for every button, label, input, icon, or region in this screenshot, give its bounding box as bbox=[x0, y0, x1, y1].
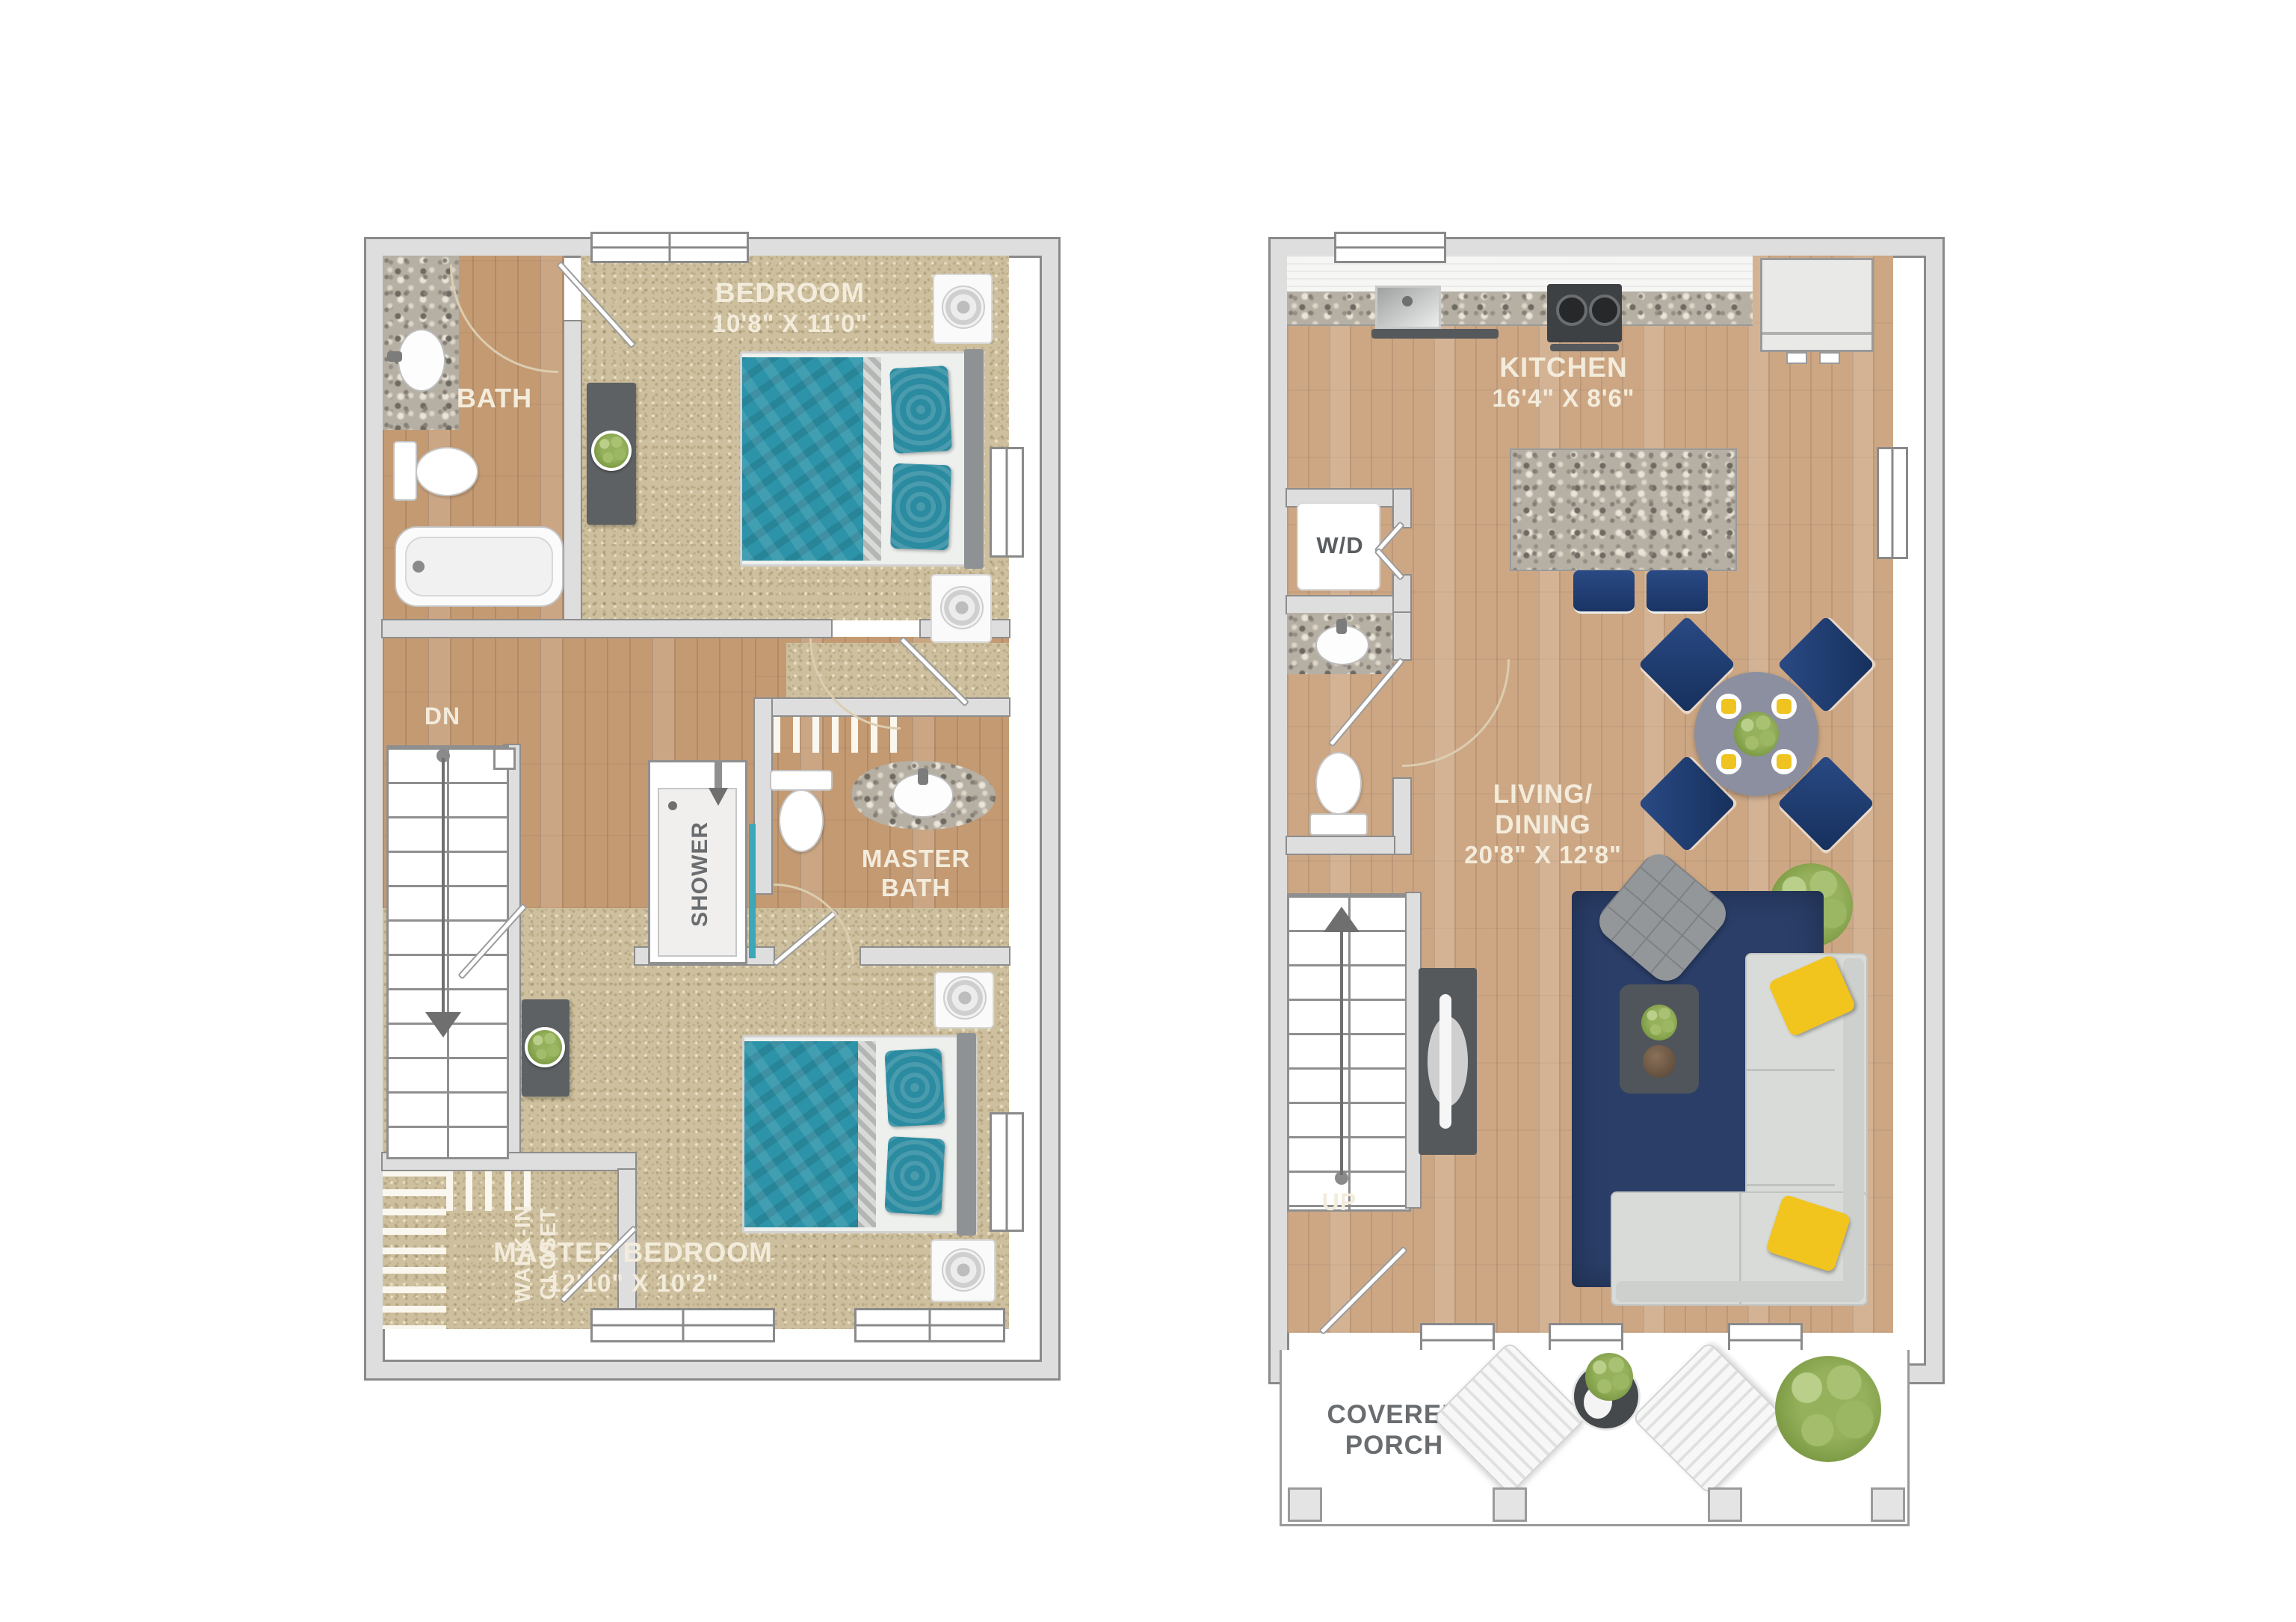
master-plant bbox=[528, 1030, 562, 1064]
laundry-wall-stub bbox=[1394, 490, 1410, 527]
plate-food bbox=[1777, 699, 1792, 714]
fridge-divider bbox=[1762, 332, 1871, 335]
sofa-backrest bbox=[1616, 1281, 1863, 1302]
porch-post bbox=[1871, 1487, 1905, 1522]
burner-icon bbox=[1556, 295, 1587, 326]
bed-headboard bbox=[964, 349, 984, 569]
master-vanity-faucet bbox=[918, 768, 928, 785]
porch-table-plant bbox=[1585, 1353, 1633, 1401]
master-bath-side-wall bbox=[755, 699, 771, 893]
bath-toilet-tank bbox=[393, 441, 417, 501]
bed-blanket-stripe bbox=[863, 357, 881, 561]
window bbox=[590, 232, 749, 263]
stairs-up bbox=[1287, 893, 1411, 1212]
bath-label: BATH bbox=[422, 383, 567, 414]
living-dimensions: 20'8" X 12'8" bbox=[1455, 841, 1631, 870]
stairs-down bbox=[386, 745, 509, 1159]
kitchen-faucet bbox=[1402, 296, 1413, 306]
bar-stool bbox=[1647, 570, 1708, 614]
window bbox=[854, 1308, 1005, 1342]
porch-post bbox=[1708, 1487, 1742, 1522]
porch-tree bbox=[1775, 1356, 1881, 1462]
hall-wall-a bbox=[383, 620, 831, 637]
up-arrow-icon bbox=[1324, 907, 1360, 932]
master-toilet-tank bbox=[770, 770, 833, 791]
living-label-line1: LIVING/ bbox=[1455, 779, 1631, 810]
master-bath-bottom-wall-b bbox=[861, 948, 1009, 964]
bed-pillow bbox=[890, 463, 951, 551]
porch-post bbox=[1493, 1487, 1527, 1522]
bed-comforter bbox=[742, 357, 863, 561]
porch-chair bbox=[1632, 1341, 1786, 1495]
bar-stool bbox=[1573, 570, 1635, 614]
master-bed bbox=[742, 1035, 977, 1233]
powder-bottom-wall bbox=[1287, 837, 1394, 854]
bed-headboard bbox=[957, 1033, 976, 1236]
kitchen-dimensions: 16'4" X 8'6" bbox=[1478, 384, 1650, 413]
burner-icon bbox=[1589, 295, 1620, 326]
decor-basket bbox=[1643, 1045, 1676, 1078]
walk-in-closet-label: WALK-IN CLOSET bbox=[487, 1186, 584, 1321]
stair-arrow-stem bbox=[1340, 932, 1343, 1175]
powder-toilet-tank bbox=[1309, 813, 1368, 836]
plate-food bbox=[1777, 754, 1792, 769]
dishwasher-handle bbox=[1371, 329, 1499, 339]
window bbox=[590, 1308, 775, 1342]
bath-faucet bbox=[387, 351, 402, 362]
lamp-icon bbox=[942, 286, 985, 329]
newel-post bbox=[493, 747, 516, 770]
bedroom-name: BEDROOM bbox=[715, 277, 865, 308]
window bbox=[1877, 447, 1908, 559]
living-dining-label: LIVING/ DINING 20'8" X 12'8" bbox=[1455, 779, 1631, 870]
bath-toilet-bowl bbox=[416, 447, 478, 496]
bed-pillow bbox=[884, 1136, 945, 1215]
bed-blanket-stripe bbox=[858, 1041, 876, 1227]
main-floor-plan: KITCHEN 16'4" X 8'6" W/D bbox=[1271, 239, 1942, 1382]
down-arrow-icon bbox=[425, 1012, 461, 1037]
plate-food bbox=[1721, 754, 1736, 769]
kitchen-counter bbox=[1287, 292, 1753, 326]
stair-arrow-stem bbox=[442, 758, 445, 1012]
bed-comforter bbox=[744, 1041, 858, 1227]
shower-head-pipe bbox=[715, 762, 722, 788]
kitchen-sink bbox=[1375, 286, 1441, 329]
table-centerpiece-plant bbox=[1734, 712, 1779, 756]
bedroom-plant bbox=[594, 434, 629, 468]
lamp-icon bbox=[943, 976, 987, 1020]
washer-dryer-label: W/D bbox=[1298, 532, 1382, 560]
window bbox=[990, 447, 1024, 558]
powder-wall-stub bbox=[1394, 779, 1410, 854]
bed-pillow bbox=[889, 366, 952, 454]
bedroom-dimensions: 10'8" X 11'0" bbox=[667, 309, 913, 339]
lamp-icon bbox=[942, 1248, 985, 1292]
powder-toilet-bowl bbox=[1315, 752, 1362, 815]
window bbox=[1334, 232, 1446, 263]
stairs-down-label: DN bbox=[401, 703, 484, 731]
bathtub bbox=[395, 526, 564, 607]
bedroom-bed bbox=[740, 351, 984, 567]
bedroom-label: BEDROOM 10'8" X 11'0" bbox=[667, 277, 913, 339]
kitchen-name: KITCHEN bbox=[1499, 352, 1627, 383]
bed-pillow bbox=[884, 1048, 945, 1127]
stairs-up-label: UP bbox=[1298, 1188, 1380, 1217]
covered-porch: COVERED PORCH bbox=[1280, 1350, 1910, 1526]
fridge-tab bbox=[1786, 352, 1807, 364]
coffee-table-plant bbox=[1641, 1005, 1677, 1040]
tv-screen bbox=[1439, 994, 1451, 1129]
refrigerator bbox=[1760, 258, 1874, 352]
porch-chair bbox=[1433, 1341, 1587, 1495]
master-bath-label: MASTER BATH bbox=[836, 845, 996, 903]
floor-plan-canvas: DN SHOWER MASTER BATH BATH bbox=[0, 0, 2296, 1622]
kitchen-island bbox=[1510, 448, 1737, 571]
sofa-seam bbox=[1745, 1184, 1835, 1186]
bathtub-faucet bbox=[413, 561, 425, 573]
kitchen-label: KITCHEN 16'4" X 8'6" bbox=[1478, 351, 1650, 413]
plate-food bbox=[1721, 699, 1736, 714]
fridge-tab bbox=[1819, 352, 1840, 364]
upper-floor-plan: DN SHOWER MASTER BATH BATH bbox=[366, 239, 1058, 1378]
closet-shelving-left bbox=[383, 1170, 446, 1329]
bathtub-basin bbox=[405, 537, 553, 596]
window bbox=[990, 1112, 1024, 1232]
oven-handle bbox=[1550, 344, 1619, 351]
sofa-seam bbox=[1745, 1069, 1835, 1071]
living-label-line2: DINING bbox=[1455, 810, 1631, 840]
master-toilet-bowl bbox=[779, 789, 824, 852]
porch-post bbox=[1288, 1487, 1322, 1522]
